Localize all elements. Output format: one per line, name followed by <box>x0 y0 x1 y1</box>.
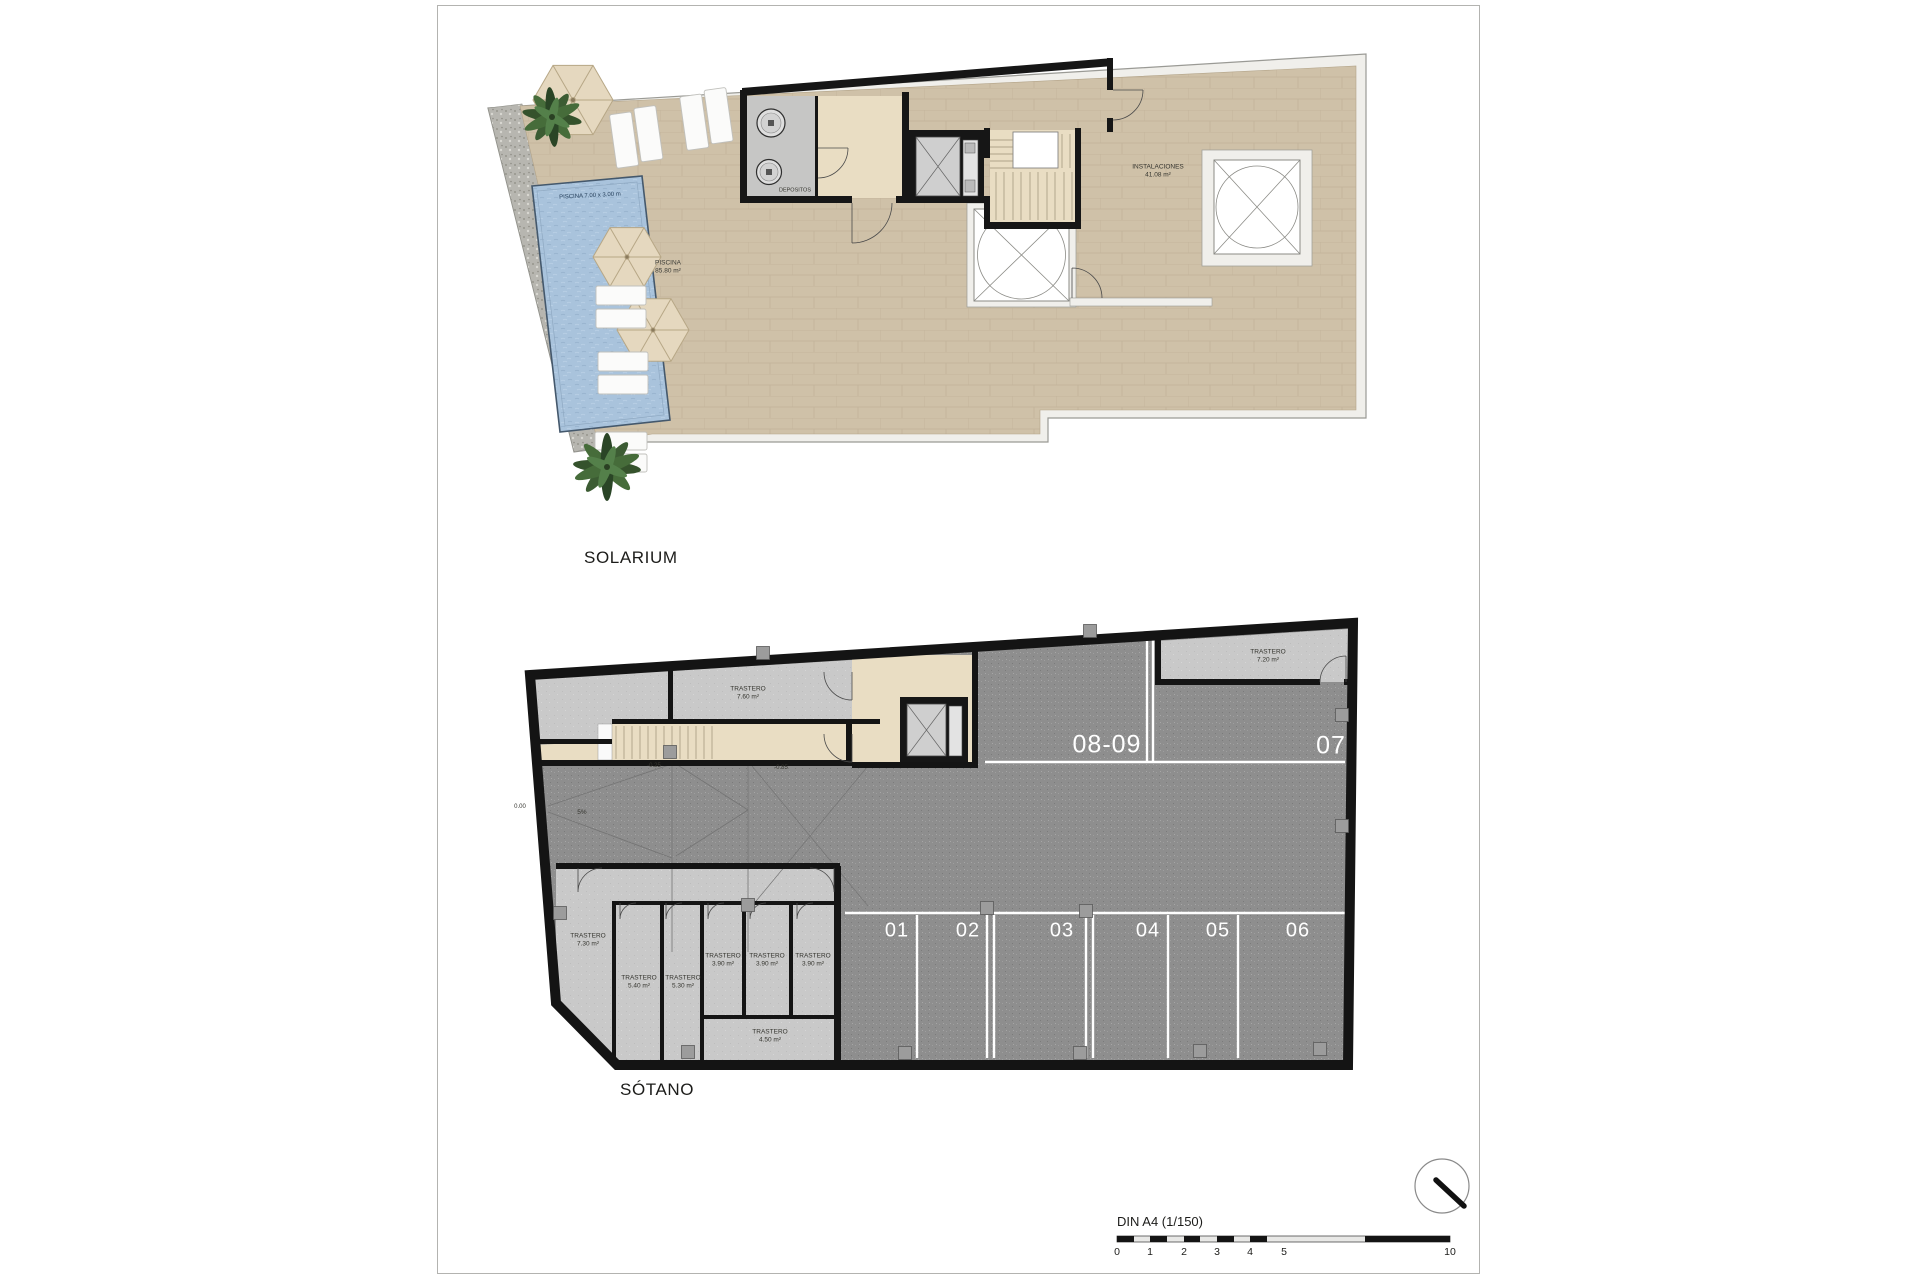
scale-tick: 1 <box>1147 1246 1153 1258</box>
storage-room-label: TRASTERO 5.30 m² <box>665 975 700 992</box>
floorplan-drawing <box>0 0 1920 1280</box>
level-mark: -0.25 <box>647 763 661 771</box>
instalaciones-label: INSTALACIONES 41.08 m² <box>1132 164 1184 181</box>
ramp-slope-label: 5% <box>577 809 586 817</box>
storage-room-label: TRASTERO 3.90 m² <box>749 953 784 970</box>
sotano-title: SÓTANO <box>620 1080 694 1100</box>
parking-space-number: 08-09 <box>1073 731 1142 760</box>
parking-space-number: 05 <box>1206 920 1230 943</box>
storage-room-label: TRASTERO 4.50 m² <box>752 1029 787 1046</box>
scale-tick: 3 <box>1214 1246 1220 1258</box>
parking-space-number: 03 <box>1050 920 1074 943</box>
storage-room-label: TRASTERO 7.30 m² <box>570 933 605 950</box>
skylight-shaft-right <box>1202 150 1312 266</box>
solarium-plan <box>488 54 1366 501</box>
parking-space-number: 04 <box>1136 920 1160 943</box>
instalaciones-wall <box>1070 298 1212 306</box>
parking-space-number: 07 <box>1316 732 1346 761</box>
storage-room-label: TRASTERO 3.90 m² <box>705 953 740 970</box>
parking-space-number: 01 <box>885 920 909 943</box>
floorplan-page: PISCINA 7.00 x 3.00 m PISCINA 85.80 m² D… <box>0 0 1920 1280</box>
scale-tick: 2 <box>1181 1246 1187 1258</box>
pool-area-label: PISCINA 85.80 m² <box>655 260 681 277</box>
sotano-plan <box>530 623 1353 1065</box>
elevator <box>909 130 984 203</box>
storage-room-label: TRASTERO 5.40 m² <box>621 975 656 992</box>
scale-tick: 5 <box>1281 1246 1287 1258</box>
scale-label: DIN A4 (1/150) <box>1117 1214 1203 1229</box>
scale-tick: 4 <box>1247 1246 1253 1258</box>
depositos-room <box>747 96 815 198</box>
solarium-title: SOLARIUM <box>584 548 678 568</box>
scale-tick: 0 <box>1114 1246 1120 1258</box>
storage-room-label: TRASTERO 3.90 m² <box>795 953 830 970</box>
core-lobby <box>818 96 902 198</box>
north-arrow-icon <box>1415 1159 1469 1213</box>
parking-space-number: 06 <box>1286 920 1310 943</box>
depositos-label: DEPOSITOS <box>779 187 811 194</box>
storage-top-label: TRASTERO 7.60 m² <box>730 686 765 703</box>
level-mark: 0.00 <box>514 804 526 812</box>
parking-space-number: 02 <box>956 920 980 943</box>
scale-bar <box>1117 1236 1450 1242</box>
storage-topright-label: TRASTERO 7.20 m² <box>1250 649 1285 666</box>
elevator <box>900 697 968 764</box>
scale-tick: 10 <box>1444 1246 1456 1258</box>
level-mark: -0.85 <box>774 765 788 773</box>
